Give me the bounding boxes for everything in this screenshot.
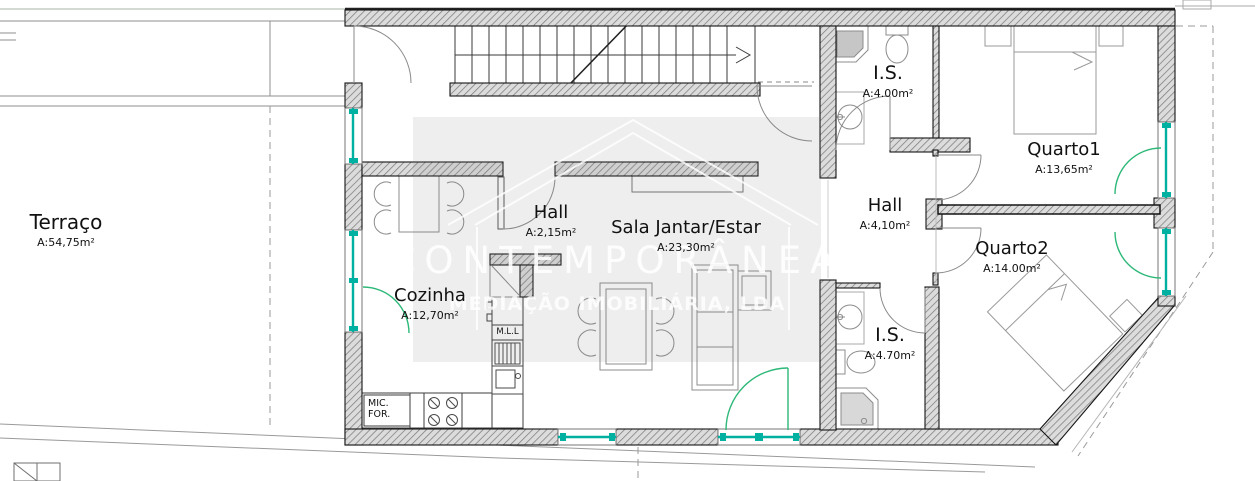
living-dining-furniture xyxy=(578,176,771,390)
room-label-hall-right: Hall A:4,10m² xyxy=(860,197,911,231)
door-quarto1-balcony xyxy=(1115,148,1161,194)
room-label-is-top: I.S. A:4.00m² xyxy=(863,64,914,99)
window-right-quarto2 xyxy=(1158,228,1175,296)
door-quarto2-balcony xyxy=(1115,232,1161,278)
room-label-is-bottom: I.S. A:4.70m² xyxy=(865,326,916,361)
stair-direction-arrow xyxy=(736,47,750,63)
door-terrace-entry xyxy=(354,26,411,83)
window-left-top xyxy=(345,108,362,164)
diagonal-wall xyxy=(1040,298,1174,445)
room-label-cozinha: Cozinha A:12,70m² xyxy=(394,287,466,321)
room-label-quarto2: Quarto2 A:14.00m² xyxy=(975,240,1049,274)
window-bottom-left xyxy=(558,429,616,445)
door-is-top xyxy=(836,96,890,150)
staircase xyxy=(455,20,755,86)
window-left-bottom xyxy=(345,230,362,332)
bedroom1-furniture xyxy=(985,26,1123,134)
label-microwave-oven: MIC. FOR. xyxy=(368,399,390,420)
room-label-sala: Sala Jantar/Estar A:23,30m² xyxy=(611,219,761,253)
site-structure-symbol xyxy=(14,463,60,481)
window-right-quarto1 xyxy=(1158,122,1175,198)
room-label-quarto1: Quarto1 A:13,65m² xyxy=(1027,141,1101,175)
door-quarto1 xyxy=(936,155,981,200)
door-sala-exterior xyxy=(726,368,788,430)
door-stair-landing xyxy=(757,82,814,141)
room-label-hall-entry: Hall A:2,15m² xyxy=(526,204,577,238)
room-label-terraco: Terraço A:54,75m² xyxy=(30,212,103,248)
floorplan-page: CONTEMPORÂNEA MEDIAÇÃO IMOBILIÁRIA, LDA … xyxy=(0,0,1255,481)
fridge-unit xyxy=(492,297,523,325)
kitchen-furniture xyxy=(374,176,464,234)
window-bottom-right-with-door xyxy=(718,429,800,445)
label-washing-machine: M.L.L xyxy=(492,328,523,338)
